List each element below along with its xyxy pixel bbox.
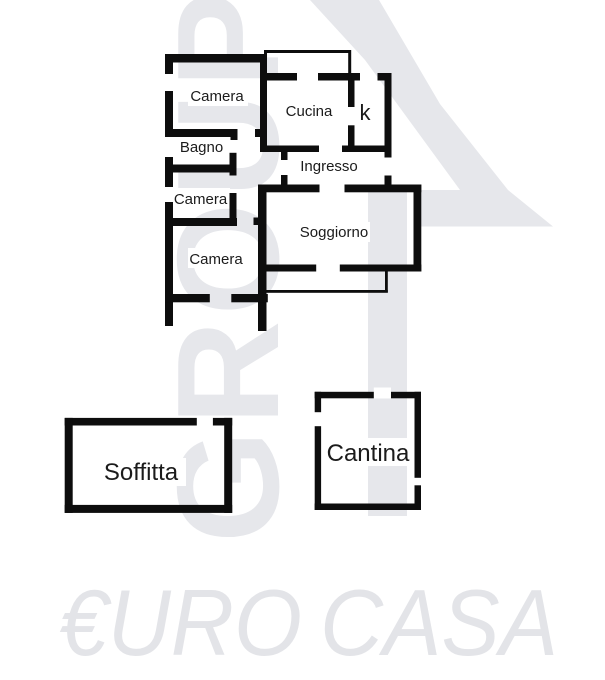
svg-text:Cucina: Cucina (286, 103, 333, 120)
svg-text:Soffitta: Soffitta (104, 459, 179, 486)
svg-text:Soggiorno: Soggiorno (300, 224, 368, 241)
svg-text:€URO: €URO (59, 570, 302, 675)
svg-text:Camera: Camera (174, 191, 228, 208)
svg-text:CASA: CASA (320, 570, 558, 675)
svg-text:k: k (360, 100, 372, 125)
svg-text:Camera: Camera (190, 88, 244, 105)
svg-text:Camera: Camera (189, 251, 243, 268)
svg-text:Bagno: Bagno (180, 139, 223, 156)
svg-text:Ingresso: Ingresso (300, 158, 358, 175)
svg-text:Cantina: Cantina (327, 440, 410, 467)
